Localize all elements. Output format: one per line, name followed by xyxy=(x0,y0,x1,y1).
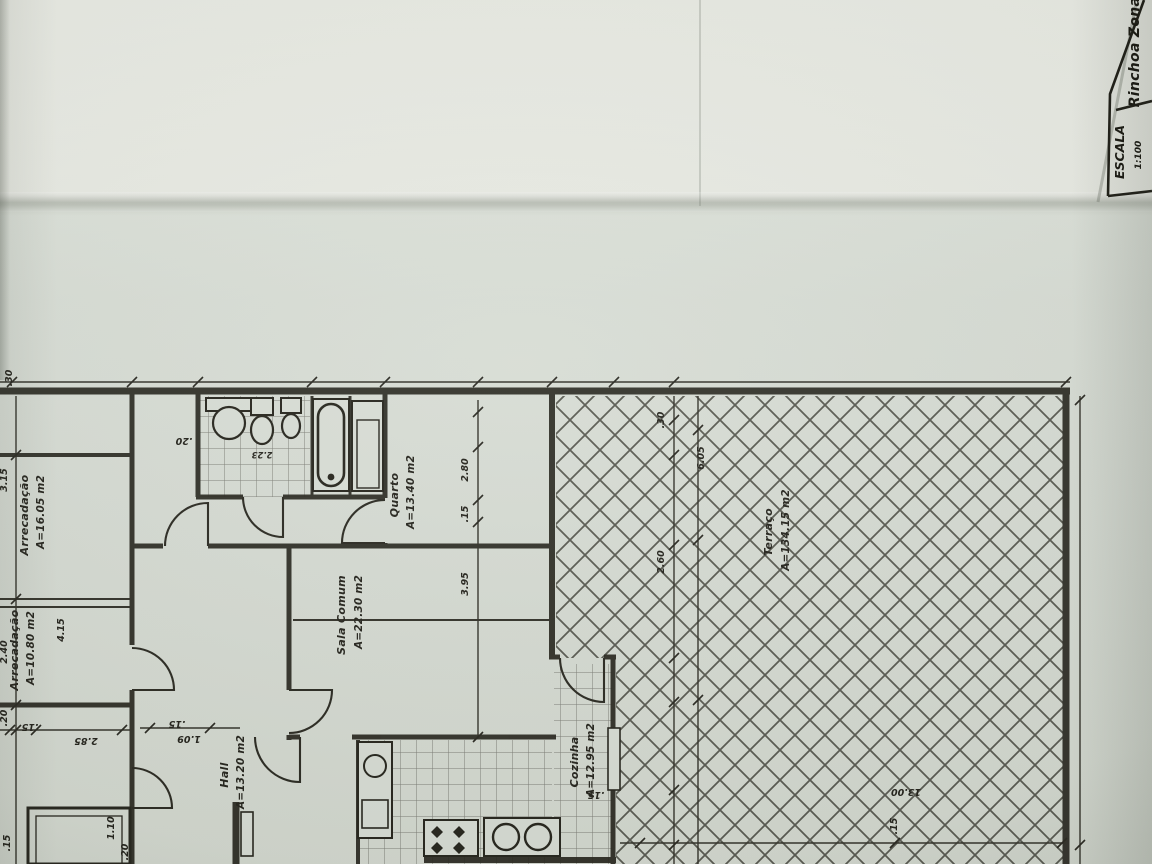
dim-value: .15 xyxy=(168,718,185,729)
room-label-terrace: Terraço xyxy=(762,508,775,556)
lower-left-door-arc xyxy=(132,768,172,808)
storage-door-arc xyxy=(132,648,174,690)
room-area-terrace: A=134.15 m2 xyxy=(780,489,792,572)
bidet-icon xyxy=(281,398,301,438)
stove-icon xyxy=(424,820,478,856)
toilet-icon xyxy=(251,398,273,444)
room-label-living: Sala Comum xyxy=(335,575,348,655)
double-sink-icon xyxy=(484,818,560,856)
room-area-storage-2: A=10.80 m2 xyxy=(25,611,37,686)
hall-kitchen-door-arc xyxy=(255,737,300,782)
dim-value: .15 xyxy=(2,834,13,851)
photographed-floor-plan: Arrecadação A=16.05 m2 Arrecadação A=10.… xyxy=(0,0,1152,864)
dim-value: 1.10 xyxy=(106,816,117,840)
bedroom-door-arc xyxy=(342,500,385,543)
dim-value: .15 xyxy=(587,789,604,800)
room-label-storage-1: Arrecadação xyxy=(18,474,31,556)
dim-value: .30 xyxy=(656,411,667,428)
bathroom-door-arc xyxy=(243,497,283,537)
room-area-living: A=22.30 m2 xyxy=(353,575,365,650)
room-label-kitchen: Cozinha xyxy=(568,737,581,788)
room-label-hall: Hall xyxy=(218,762,231,787)
dim-value: 1.09 xyxy=(177,733,201,744)
dim-value: 4.15 xyxy=(56,618,67,643)
shower-column-icon xyxy=(352,401,383,491)
corridor-door-arc xyxy=(165,503,208,546)
floor-plan-drawing: Arrecadação A=16.05 m2 Arrecadação A=10.… xyxy=(0,0,1152,864)
dim-value: .20 xyxy=(120,843,131,860)
dim-value: 2.23 xyxy=(251,449,272,459)
terrace-crosshatch xyxy=(556,396,1063,864)
room-area-kitchen: A=12.95 m2 xyxy=(585,723,597,798)
bathtub-icon xyxy=(313,399,349,491)
dim-value: .15 xyxy=(889,817,900,834)
door-leaf xyxy=(241,812,253,856)
dim-value: 3.95 xyxy=(460,572,471,596)
dim-value: .15 xyxy=(21,721,38,732)
dim-value: .30 xyxy=(4,369,15,386)
living-room-door-arc xyxy=(289,690,332,733)
dim-value: .15 xyxy=(460,505,471,522)
kitchen-window xyxy=(608,728,620,790)
dim-value: 2.85 xyxy=(74,735,98,746)
dim-value: 13.00 xyxy=(891,786,921,797)
dim-value: 3.15 xyxy=(0,468,10,492)
room-area-storage-1: A=16.05 m2 xyxy=(35,475,47,550)
dim-value: .20 xyxy=(0,709,10,726)
dim-value: 2.40 xyxy=(0,640,10,664)
title-block: ESCALA 1:100 Rinchoa Zona xyxy=(1098,0,1152,202)
room-area-bedroom: A=13.40 m2 xyxy=(405,455,417,530)
scale-value: 1:100 xyxy=(1134,141,1144,170)
dim-value: .20 xyxy=(175,435,192,446)
scale-label: ESCALA xyxy=(1112,125,1127,179)
dim-value: 6.05 xyxy=(696,446,707,470)
dim-value: 2.60 xyxy=(656,550,667,574)
project-zone: Rinchoa Zona xyxy=(1127,0,1143,107)
kitchen-counter xyxy=(358,742,392,838)
room-label-bedroom: Quarto xyxy=(388,473,401,518)
dim-value: 2.80 xyxy=(460,458,471,482)
room-area-hall: A=13.20 m2 xyxy=(235,735,247,810)
